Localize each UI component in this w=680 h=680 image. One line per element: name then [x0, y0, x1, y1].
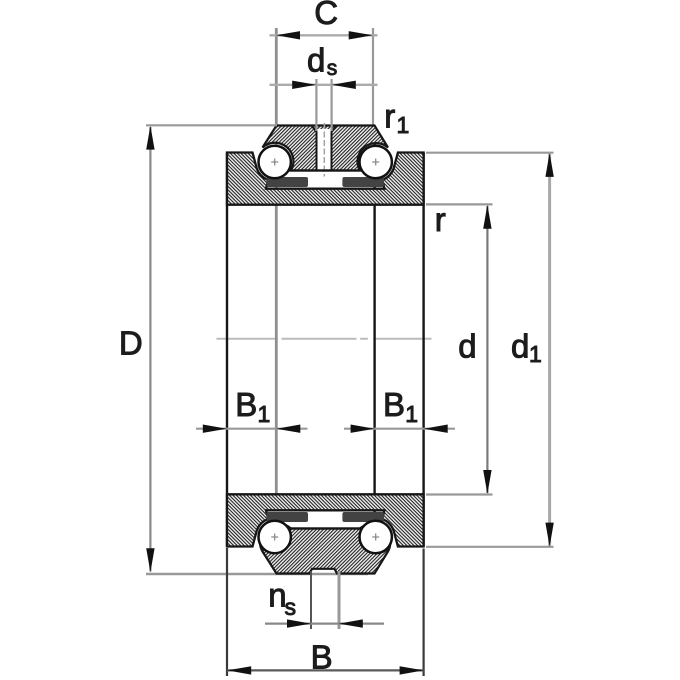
svg-text:s: s	[285, 594, 297, 620]
svg-text:B: B	[383, 386, 405, 423]
svg-text:D: D	[119, 324, 143, 361]
svg-text:1: 1	[529, 341, 542, 367]
svg-text:B: B	[311, 638, 333, 675]
svg-text:1: 1	[258, 401, 271, 427]
svg-text:r: r	[435, 201, 446, 238]
svg-text:s: s	[327, 57, 338, 80]
svg-text:d: d	[511, 328, 529, 365]
svg-text:B: B	[235, 386, 257, 423]
svg-text:d: d	[307, 42, 325, 79]
svg-text:C: C	[314, 0, 338, 31]
svg-text:1: 1	[405, 401, 418, 427]
svg-text:d: d	[458, 328, 476, 365]
svg-text:r: r	[384, 97, 395, 134]
svg-text:1: 1	[397, 112, 410, 138]
